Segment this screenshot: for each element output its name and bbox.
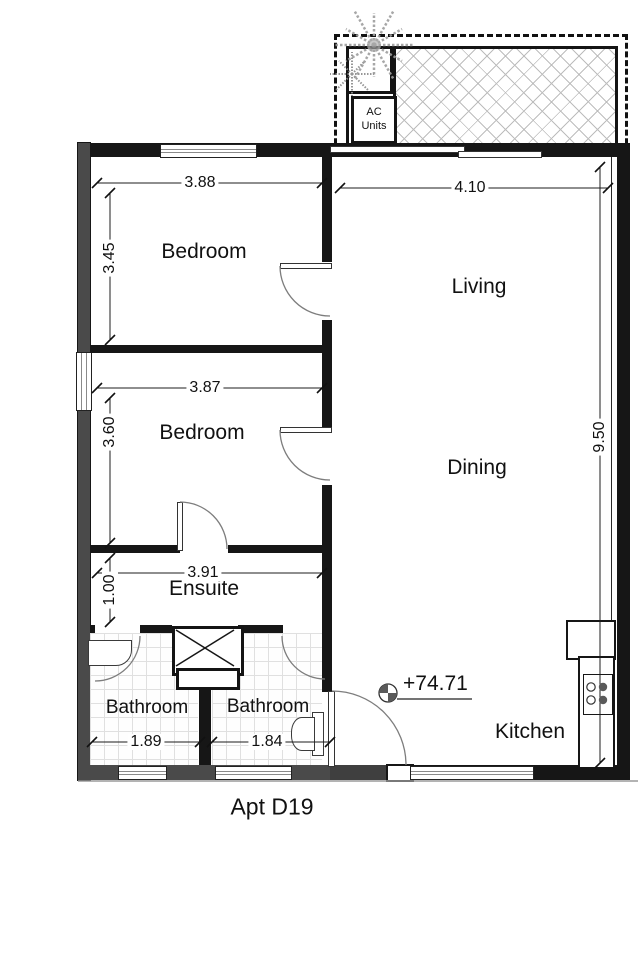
ensuite-door-arc bbox=[180, 502, 227, 549]
bedroom2-window bbox=[76, 352, 92, 411]
wall-ensuite-top-a bbox=[90, 545, 180, 553]
living-sliding-door-panel-2 bbox=[458, 151, 542, 158]
bedroom1-window bbox=[160, 144, 257, 158]
wall-central-2 bbox=[322, 320, 332, 430]
balcony-tile-hatch bbox=[393, 49, 615, 148]
wall-ensuite-bottom-d bbox=[325, 625, 330, 633]
wall-ensuite-top-b bbox=[228, 545, 330, 553]
wall-central-1 bbox=[322, 157, 332, 262]
dim-dining-height: 9.50 bbox=[592, 418, 608, 455]
bathroom2-window bbox=[215, 766, 292, 780]
dim-bedroom2-height: 3.60 bbox=[102, 413, 118, 450]
bathroom1-sink bbox=[88, 640, 132, 666]
dim-ensuite-width: 3.91 bbox=[184, 565, 221, 581]
wall-central-3 bbox=[322, 485, 332, 692]
bedroom1-label: Bedroom bbox=[161, 240, 246, 264]
ac-units-label-2: Units bbox=[361, 120, 386, 134]
page-title: Apt D19 bbox=[230, 794, 313, 821]
dining-label: Dining bbox=[447, 456, 507, 480]
bathroom2-toilet-bowl bbox=[291, 717, 315, 751]
kitchen-window bbox=[410, 766, 534, 780]
service-shaft-base bbox=[176, 668, 240, 690]
bedroom2-label: Bedroom bbox=[159, 421, 244, 445]
wall-between-bathrooms bbox=[199, 684, 211, 765]
wall-bedroom-divider bbox=[90, 345, 330, 353]
ensuite-door-panel bbox=[177, 502, 183, 551]
wall-right bbox=[617, 143, 630, 780]
hall-door-panel bbox=[328, 691, 335, 767]
kitchen-stove bbox=[583, 674, 613, 715]
bedroom1-door-arc bbox=[280, 266, 330, 316]
planter-box bbox=[349, 49, 393, 94]
bedroom2-door-panel bbox=[280, 427, 332, 433]
wall-bottom-gray-left bbox=[78, 765, 330, 780]
kitchen-fridge bbox=[566, 620, 616, 660]
ac-units-label-1: AC bbox=[366, 106, 381, 120]
bedroom2-door-arc bbox=[280, 430, 330, 480]
kitchen-label: Kitchen bbox=[495, 720, 565, 744]
ac-units-box: AC Units bbox=[351, 96, 397, 144]
wall-ensuite-bottom-c bbox=[238, 625, 283, 633]
bathroom1-window bbox=[118, 766, 167, 780]
dim-bedroom2-width: 3.87 bbox=[186, 380, 223, 396]
balcony-floor: AC Units bbox=[346, 46, 618, 151]
wall-ensuite-bottom-b bbox=[140, 625, 172, 633]
dim-living-width: 4.10 bbox=[451, 180, 488, 196]
bathroom2-label: Bathroom bbox=[227, 696, 309, 718]
living-sliding-door-panel-1 bbox=[330, 146, 465, 153]
floor-plan: AC Units bbox=[0, 0, 640, 960]
hall-door-arc bbox=[332, 691, 406, 765]
bedroom1-door-panel bbox=[280, 263, 332, 269]
dim-bathroom1-width: 1.89 bbox=[127, 734, 164, 750]
living-label: Living bbox=[452, 275, 507, 299]
wall-left bbox=[78, 143, 90, 780]
level-marker-value: +74.71 bbox=[403, 673, 468, 694]
dim-bedroom1-height: 3.45 bbox=[102, 239, 118, 276]
dim-bathroom2-width: 1.84 bbox=[248, 734, 285, 750]
dim-ensuite-height: 1.00 bbox=[102, 571, 118, 608]
dim-bedroom1-width: 3.88 bbox=[181, 175, 218, 191]
bathroom1-label: Bathroom bbox=[106, 697, 188, 719]
wall-ensuite-bottom-a bbox=[90, 625, 95, 633]
